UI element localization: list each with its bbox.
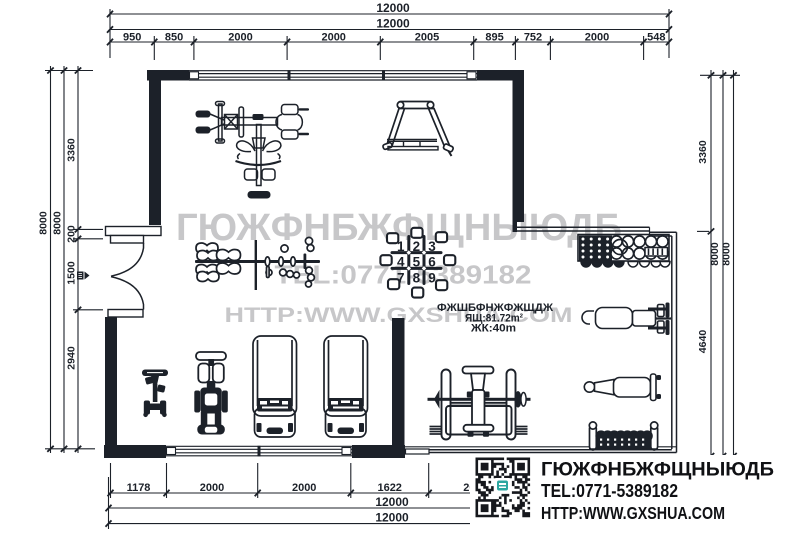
svg-text:5: 5 xyxy=(413,255,421,270)
svg-text:8000: 8000 xyxy=(709,242,721,266)
svg-text:9: 9 xyxy=(428,270,436,285)
svg-text:ЖК:40m: ЖК:40m xyxy=(470,323,516,335)
svg-text:TEL:0771-5389182: TEL:0771-5389182 xyxy=(541,480,678,501)
svg-text:2: 2 xyxy=(413,239,421,254)
svg-text:6: 6 xyxy=(428,255,436,270)
svg-text:1622: 1622 xyxy=(377,482,401,494)
svg-text:548: 548 xyxy=(647,32,665,44)
svg-text:2005: 2005 xyxy=(415,32,439,44)
svg-text:8000: 8000 xyxy=(721,242,733,266)
svg-text:1178: 1178 xyxy=(127,482,151,494)
svg-text:12000: 12000 xyxy=(376,17,410,31)
svg-text:12000: 12000 xyxy=(375,495,409,509)
svg-text:950: 950 xyxy=(123,32,141,44)
svg-text:2000: 2000 xyxy=(228,32,252,44)
svg-text:2940: 2940 xyxy=(66,346,78,370)
svg-text:895: 895 xyxy=(485,32,503,44)
svg-text:12000: 12000 xyxy=(376,1,410,15)
svg-text:200: 200 xyxy=(66,225,78,243)
svg-text:HTTP:WWW.GXSHUA.COM: HTTP:WWW.GXSHUA.COM xyxy=(541,503,725,523)
svg-text:2000: 2000 xyxy=(292,482,316,494)
svg-text:850: 850 xyxy=(165,32,183,44)
svg-text:8000: 8000 xyxy=(52,211,64,235)
svg-text:8: 8 xyxy=(413,270,421,285)
svg-text:2000: 2000 xyxy=(200,482,224,494)
svg-text:1500: 1500 xyxy=(66,261,78,285)
svg-text:3360: 3360 xyxy=(66,138,78,162)
svg-text:8000: 8000 xyxy=(38,211,50,235)
svg-text:4: 4 xyxy=(397,255,405,270)
svg-text:2000: 2000 xyxy=(585,32,609,44)
svg-text:752: 752 xyxy=(524,32,542,44)
svg-text:4640: 4640 xyxy=(697,330,709,354)
svg-text:2000: 2000 xyxy=(321,32,345,44)
svg-text:3360: 3360 xyxy=(697,140,709,164)
svg-text:ГЮЖФНБЖФЩНЫЮДБ: ГЮЖФНБЖФЩНЫЮДБ xyxy=(541,460,774,481)
svg-text:12000: 12000 xyxy=(375,511,409,525)
